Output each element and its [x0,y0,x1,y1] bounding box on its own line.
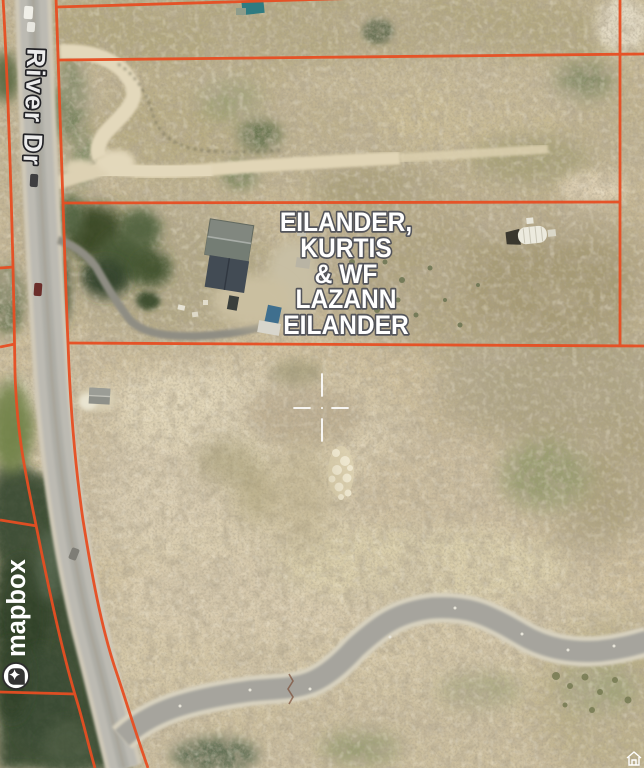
svg-text:River Dr: River Dr [17,48,51,168]
svg-text:EILANDER: EILANDER [283,311,409,340]
svg-text:EILANDER,: EILANDER, [280,208,412,237]
svg-text:LAZANN: LAZANN [296,285,397,314]
svg-text:mapbox: mapbox [3,559,31,657]
svg-text:KURTIS: KURTIS [300,234,391,263]
